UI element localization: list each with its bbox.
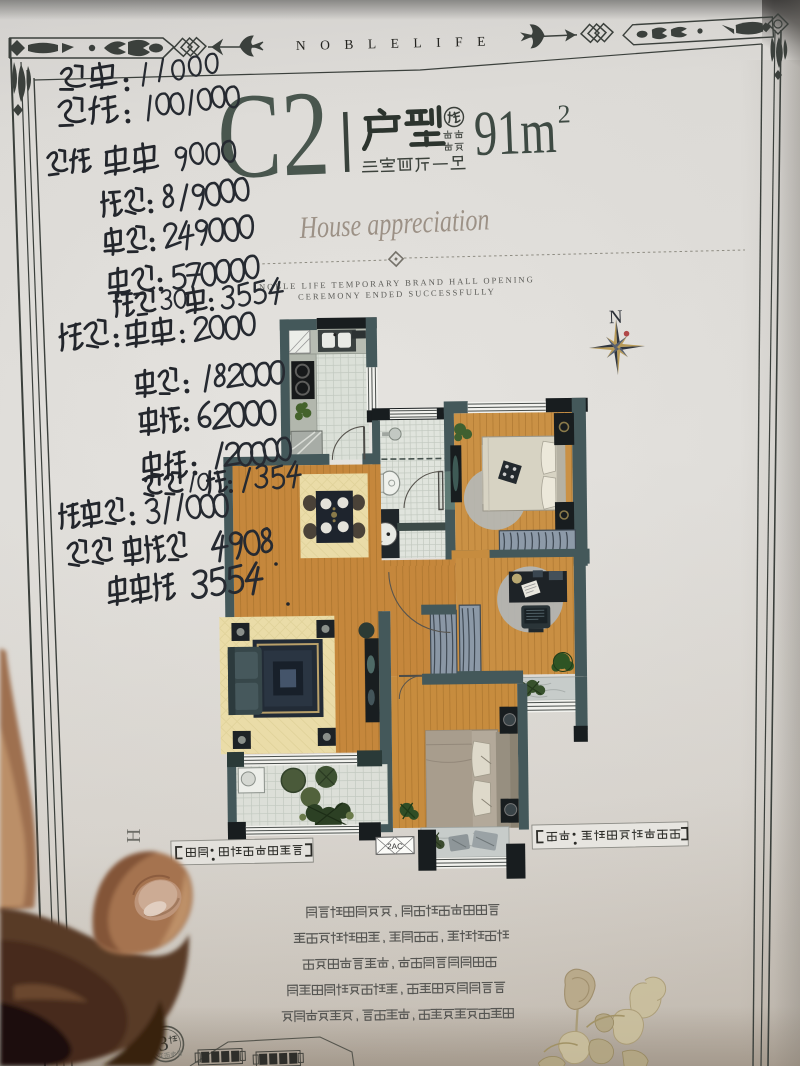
svg-text:House appreciation: House appreciation xyxy=(298,201,490,245)
svg-text:91m: 91m xyxy=(473,95,558,169)
svg-text:NOBLELIFE: NOBLELIFE xyxy=(296,33,500,53)
svg-text:2AC: 2AC xyxy=(387,842,403,851)
svg-text:H: H xyxy=(123,829,145,843)
svg-text:2: 2 xyxy=(557,99,571,128)
